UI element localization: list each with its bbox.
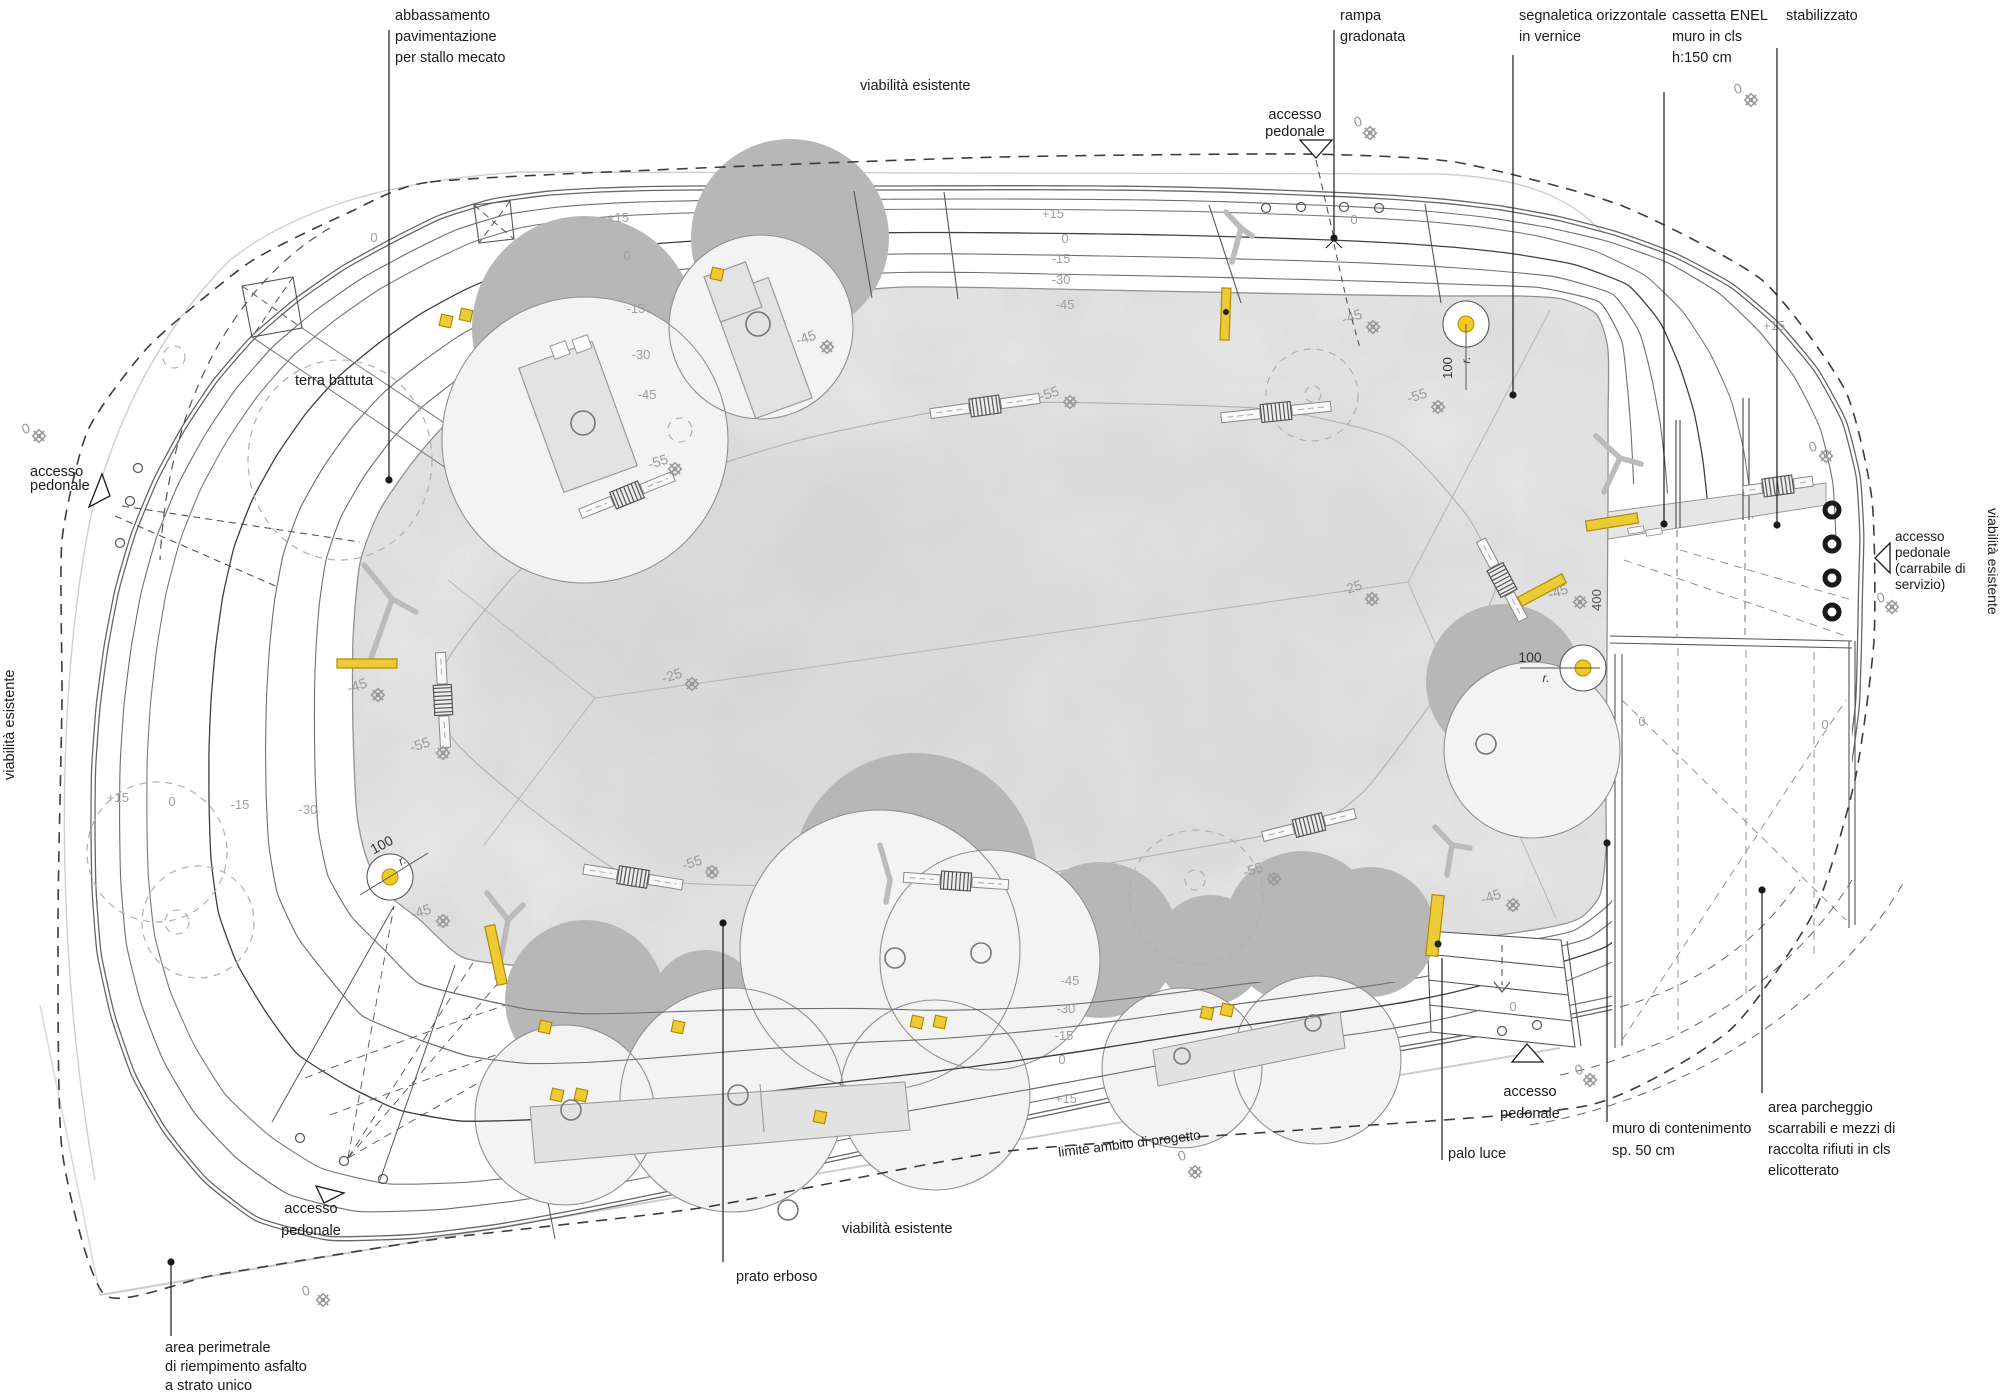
svg-text:+15: +15 [1042,206,1064,221]
svg-text:(carrabile di: (carrabile di [1895,561,1966,576]
svg-text:cassetta ENEL: cassetta ENEL [1672,8,1768,24]
svg-text:scarrabili e mezzi di: scarrabili e mezzi di [1768,1121,1895,1137]
svg-text:100: 100 [1440,357,1455,379]
svg-text:0: 0 [1061,231,1068,246]
svg-text:-15: -15 [1055,1028,1074,1043]
svg-text:sp. 50 cm: sp. 50 cm [1612,1143,1675,1159]
svg-text:a strato unico: a strato unico [165,1378,252,1394]
svg-text:-15: -15 [231,797,250,812]
svg-text:+15: +15 [1055,1091,1077,1106]
svg-text:+15: +15 [107,790,129,805]
svg-text:+15: +15 [607,210,629,225]
svg-text:prato erboso: prato erboso [736,1269,817,1285]
svg-text:per stallo mecato: per stallo mecato [395,50,505,66]
svg-text:pedonale: pedonale [30,478,90,494]
svg-text:-30: -30 [1057,1001,1076,1016]
svg-text:gradonata: gradonata [1340,29,1406,45]
svg-text:viabilità esistente: viabilità esistente [860,78,970,94]
svg-text:+15: +15 [1763,318,1785,333]
svg-text:0: 0 [1058,1052,1065,1067]
svg-text:accesso: accesso [1268,107,1321,123]
svg-text:0: 0 [1509,999,1516,1014]
svg-text:palo luce: palo luce [1448,1146,1506,1162]
svg-text:400: 400 [1589,589,1604,611]
svg-text:terra battuta: terra battuta [295,373,374,389]
svg-text:-30: -30 [1052,272,1071,287]
svg-text:pedonale: pedonale [1265,124,1325,140]
svg-text:area parcheggio: area parcheggio [1768,1100,1873,1116]
svg-text:pedonale: pedonale [1895,545,1951,560]
svg-text:0: 0 [370,230,377,245]
svg-text:100: 100 [1518,649,1542,665]
svg-text:-15: -15 [627,301,646,316]
svg-text:viabilità esistente: viabilità esistente [2,670,18,780]
svg-text:in vernice: in vernice [1519,29,1581,45]
svg-text:rampa: rampa [1340,8,1382,24]
svg-text:segnaletica orizzontale: segnaletica orizzontale [1519,8,1667,24]
svg-text:pedonale: pedonale [1500,1106,1560,1122]
svg-text:raccolta rifiuti in cls: raccolta rifiuti in cls [1768,1142,1890,1158]
svg-text:muro di contenimento: muro di contenimento [1612,1121,1751,1137]
svg-text:abbassamento: abbassamento [395,8,490,24]
svg-text:area perimetrale: area perimetrale [165,1340,271,1356]
svg-text:stabilizzato: stabilizzato [1786,8,1858,24]
svg-text:elicotterato: elicotterato [1768,1163,1839,1179]
svg-text:-15: -15 [1052,251,1071,266]
svg-text:-30: -30 [632,347,651,362]
svg-text:accesso: accesso [1503,1084,1556,1100]
svg-text:viabilità esistente: viabilità esistente [842,1221,952,1237]
svg-text:accesso: accesso [284,1201,337,1217]
svg-text:pavimentazione: pavimentazione [395,29,497,45]
svg-text:viabilità esistente: viabilità esistente [1985,508,2000,615]
svg-text:0: 0 [1821,717,1828,732]
svg-text:di riempimento asfalto: di riempimento asfalto [165,1359,307,1375]
svg-text:0: 0 [623,248,630,263]
svg-text:-45: -45 [638,387,657,402]
svg-text:accesso: accesso [1895,529,1945,544]
svg-text:h:150 cm: h:150 cm [1672,50,1732,66]
svg-text:r.: r. [1543,671,1550,685]
svg-text:servizio): servizio) [1895,577,1945,592]
svg-text:muro in cls: muro in cls [1672,29,1742,45]
svg-text:-45: -45 [1056,297,1075,312]
svg-text:0: 0 [1638,714,1645,729]
svg-text:0: 0 [168,794,175,809]
svg-text:0: 0 [1350,212,1357,227]
svg-text:-30: -30 [299,802,318,817]
svg-text:-45: -45 [1061,973,1080,988]
svg-text:pedonale: pedonale [281,1223,341,1239]
